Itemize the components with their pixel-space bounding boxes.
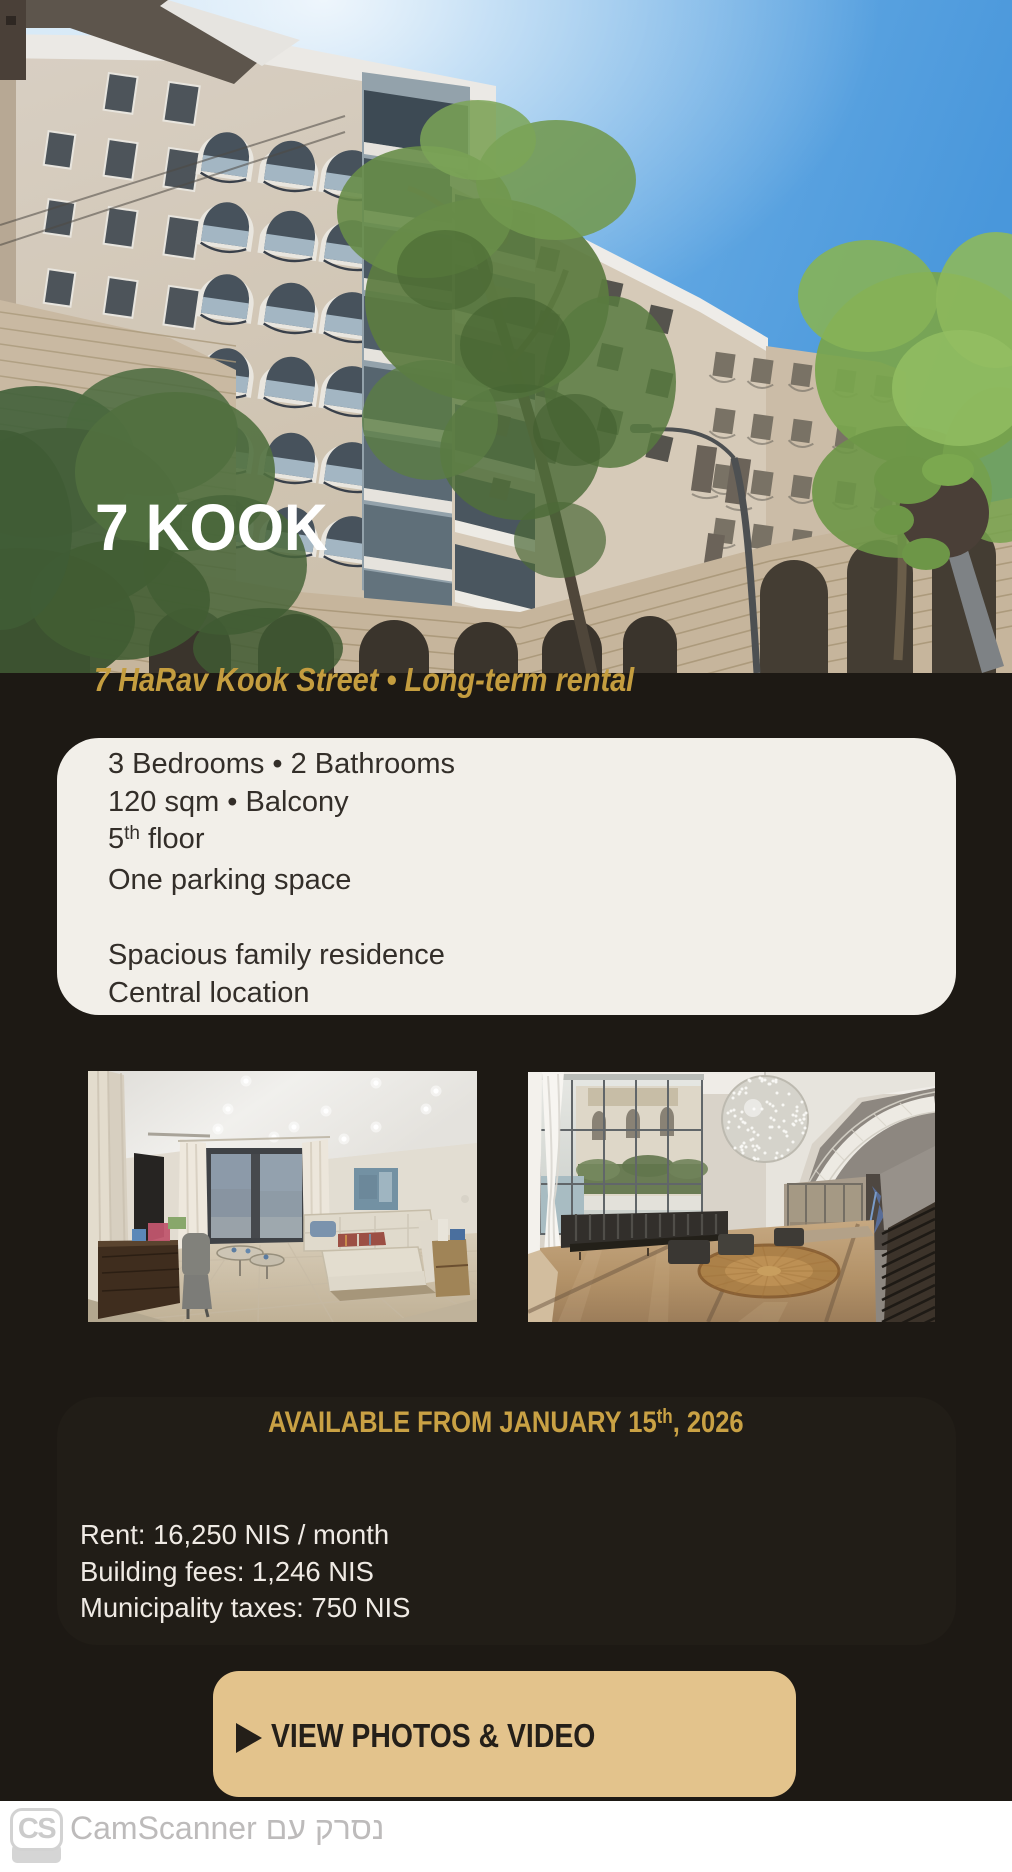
svg-text:7 KOOK: 7 KOOK xyxy=(95,492,328,565)
